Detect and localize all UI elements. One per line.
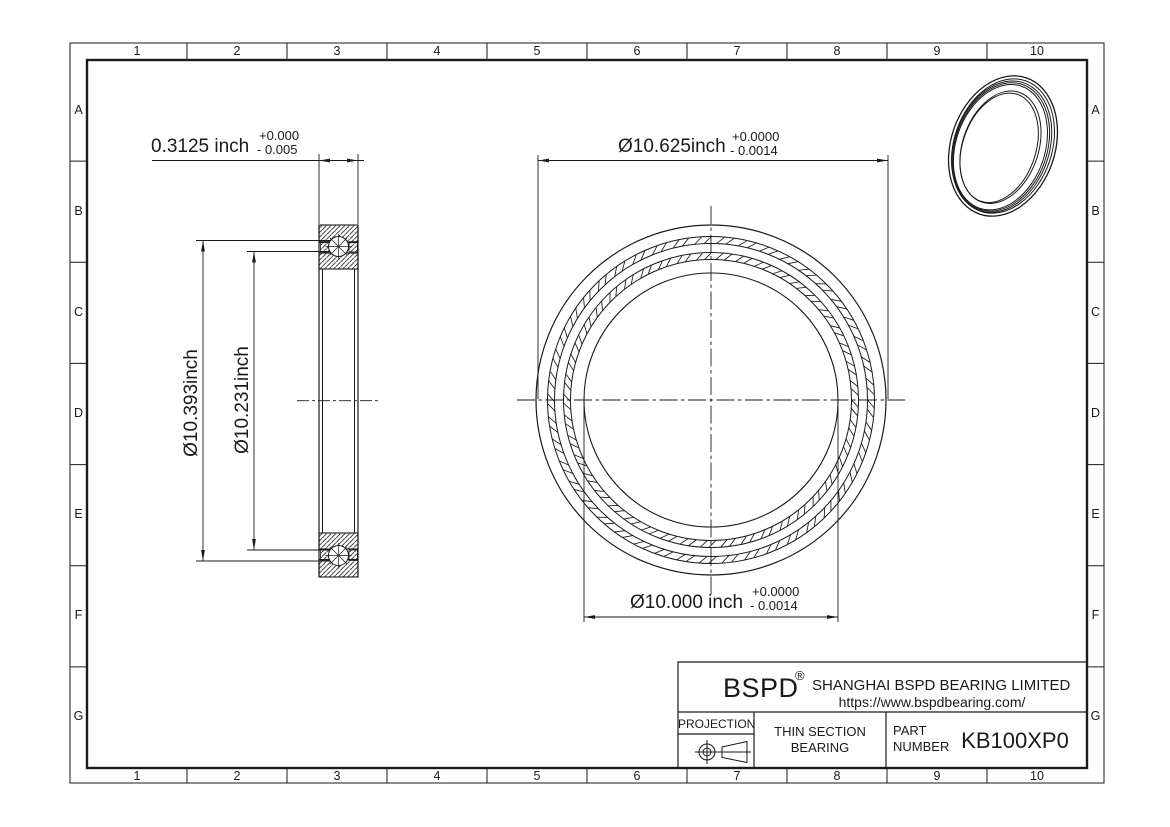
- grid-col-label-bottom-7: 7: [687, 769, 787, 783]
- grid-col-label-top-7: 7: [687, 44, 787, 58]
- grid-col-label-bottom-8: 8: [787, 769, 887, 783]
- front-bore-dia-tol-minus: - 0.0014: [750, 599, 798, 613]
- grid-col-label-top-3: 3: [287, 44, 387, 58]
- part-number-label-line2: NUMBER: [893, 739, 949, 754]
- drawing-sheet: 0.3125 inch +0.000 - 0.005 Ø10.393inch Ø…: [0, 0, 1170, 827]
- grid-row-label-left-A: A: [70, 103, 87, 117]
- front-outer-dia-dim-value: Ø10.625inch: [618, 136, 726, 158]
- front-outer-dia-tol-plus: +0.0000: [732, 130, 779, 144]
- grid-col-label-top-5: 5: [487, 44, 587, 58]
- side-width-dim-value: 0.3125 inch: [151, 136, 249, 158]
- grid-col-label-bottom-10: 10: [987, 769, 1087, 783]
- grid-col-label-bottom-5: 5: [487, 769, 587, 783]
- part-number-label-line1: PART: [893, 723, 926, 738]
- grid-col-label-top-6: 6: [587, 44, 687, 58]
- grid-col-label-top-1: 1: [87, 44, 187, 58]
- side-width-dim-tol-minus: - 0.005: [257, 143, 297, 157]
- side-outer-race-dim-value: Ø10.393inch: [181, 333, 203, 473]
- front-view: [517, 155, 905, 622]
- grid-row-label-left-E: E: [70, 507, 87, 521]
- side-width-dim-tol-plus: +0.000: [259, 129, 299, 143]
- grid-col-label-top-9: 9: [887, 44, 987, 58]
- grid-col-label-bottom-2: 2: [187, 769, 287, 783]
- projection-label: PROJECTION: [678, 717, 754, 731]
- product-type-line2: BEARING: [754, 740, 886, 755]
- product-type-line1: THIN SECTION: [754, 724, 886, 739]
- grid-row-label-right-B: B: [1087, 204, 1104, 218]
- grid-row-label-left-F: F: [70, 608, 87, 622]
- grid-col-label-bottom-1: 1: [87, 769, 187, 783]
- grid-col-label-bottom-3: 3: [287, 769, 387, 783]
- website-link: https://www.bspdbearing.com/: [812, 694, 1052, 710]
- front-bore-dia-tol-plus: +0.0000: [752, 585, 799, 599]
- grid-row-label-right-F: F: [1087, 608, 1104, 622]
- grid-row-label-left-C: C: [70, 305, 87, 319]
- grid-row-label-left-B: B: [70, 204, 87, 218]
- grid-row-label-right-D: D: [1087, 406, 1104, 420]
- bspd-logo: BSPD: [723, 673, 799, 704]
- grid-row-label-right-G: G: [1087, 709, 1104, 723]
- isometric-view: [930, 61, 1075, 231]
- front-bore-dia-dim-value: Ø10.000 inch: [630, 592, 743, 614]
- grid-col-label-bottom-6: 6: [587, 769, 687, 783]
- front-outer-dia-tol-minus: - 0.0014: [730, 144, 778, 158]
- grid-row-label-left-D: D: [70, 406, 87, 420]
- grid-col-label-top-10: 10: [987, 44, 1087, 58]
- grid-row-label-right-A: A: [1087, 103, 1104, 117]
- top-section-block: [319, 225, 358, 269]
- bottom-section-block: [319, 533, 358, 577]
- grid-row-label-right-E: E: [1087, 507, 1104, 521]
- grid-row-label-right-C: C: [1087, 305, 1104, 319]
- part-number-value: KB100XP0: [945, 728, 1085, 754]
- grid-col-label-top-2: 2: [187, 44, 287, 58]
- grid-col-label-top-4: 4: [387, 44, 487, 58]
- grid-col-label-top-8: 8: [787, 44, 887, 58]
- grid-row-label-left-G: G: [70, 709, 87, 723]
- side-inner-race-dim-value: Ø10.231inch: [232, 330, 254, 470]
- grid-col-label-bottom-9: 9: [887, 769, 987, 783]
- grid-col-label-bottom-4: 4: [387, 769, 487, 783]
- projection-symbol: [695, 740, 751, 764]
- company-name: SHANGHAI BSPD BEARING LIMITED: [812, 677, 1052, 694]
- registered-mark-icon: ®: [795, 668, 805, 683]
